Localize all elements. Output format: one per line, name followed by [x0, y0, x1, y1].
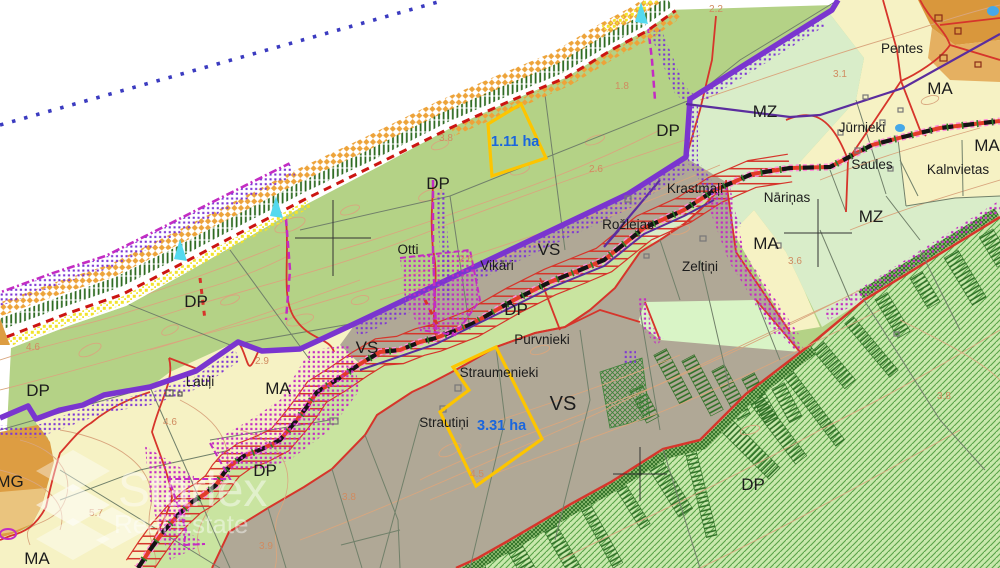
svg-text:4.6: 4.6 — [163, 417, 177, 428]
svg-text:Zeltiņi: Zeltiņi — [682, 259, 718, 274]
svg-text:2.9: 2.9 — [255, 356, 269, 367]
svg-text:Kalnvietas: Kalnvietas — [927, 162, 990, 177]
svg-text:Otti: Otti — [397, 242, 418, 257]
svg-text:3.8: 3.8 — [342, 492, 356, 503]
svg-text:DP: DP — [504, 300, 528, 319]
svg-text:2.6: 2.6 — [589, 164, 603, 175]
svg-text:VS: VS — [356, 338, 379, 357]
svg-text:MA: MA — [24, 549, 50, 568]
svg-text:Saules: Saules — [851, 157, 893, 172]
svg-text:Straumenieki: Straumenieki — [460, 365, 539, 380]
svg-text:2.2: 2.2 — [709, 4, 723, 15]
svg-text:4.5: 4.5 — [470, 469, 484, 480]
svg-text:3.8: 3.8 — [937, 391, 951, 402]
svg-text:3.9: 3.9 — [259, 541, 273, 552]
svg-text:3.31 ha: 3.31 ha — [477, 418, 527, 434]
svg-text:3.1: 3.1 — [833, 69, 847, 80]
svg-text:VS: VS — [538, 240, 561, 259]
svg-text:DP: DP — [426, 174, 450, 193]
svg-text:3.6: 3.6 — [788, 256, 802, 267]
svg-text:Nāriņas: Nāriņas — [764, 190, 811, 205]
svg-text:MG: MG — [0, 472, 24, 491]
svg-text:Real Estate: Real Estate — [114, 509, 248, 539]
svg-text:Krastmaļi: Krastmaļi — [667, 181, 723, 196]
svg-text:Strautiņi: Strautiņi — [419, 415, 469, 430]
svg-text:MA: MA — [974, 136, 1000, 155]
svg-text:1.11 ha: 1.11 ha — [491, 134, 540, 150]
svg-text:DP: DP — [26, 381, 50, 400]
svg-text:Pentes: Pentes — [881, 41, 923, 56]
svg-text:1.8: 1.8 — [615, 81, 629, 92]
svg-text:3.8: 3.8 — [439, 133, 453, 144]
svg-text:Jūrnieki: Jūrnieki — [839, 120, 886, 135]
svg-text:Purvnieki: Purvnieki — [514, 332, 570, 347]
svg-text:Vikāri: Vikāri — [480, 258, 514, 273]
svg-text:4.6: 4.6 — [26, 342, 40, 353]
svg-text:VS: VS — [550, 393, 577, 415]
svg-text:DP: DP — [656, 121, 680, 140]
svg-text:MA: MA — [265, 379, 291, 398]
svg-text:MA: MA — [927, 79, 953, 98]
svg-text:MZ: MZ — [859, 207, 884, 226]
svg-text:MZ: MZ — [753, 102, 778, 121]
svg-text:DP: DP — [184, 292, 208, 311]
svg-text:DP: DP — [741, 475, 765, 494]
svg-text:Rožlejas: Rožlejas — [602, 217, 654, 232]
svg-text:MA: MA — [753, 234, 779, 253]
svg-text:Lauļi: Lauļi — [186, 374, 215, 389]
svg-text:2.6: 2.6 — [459, 254, 473, 265]
